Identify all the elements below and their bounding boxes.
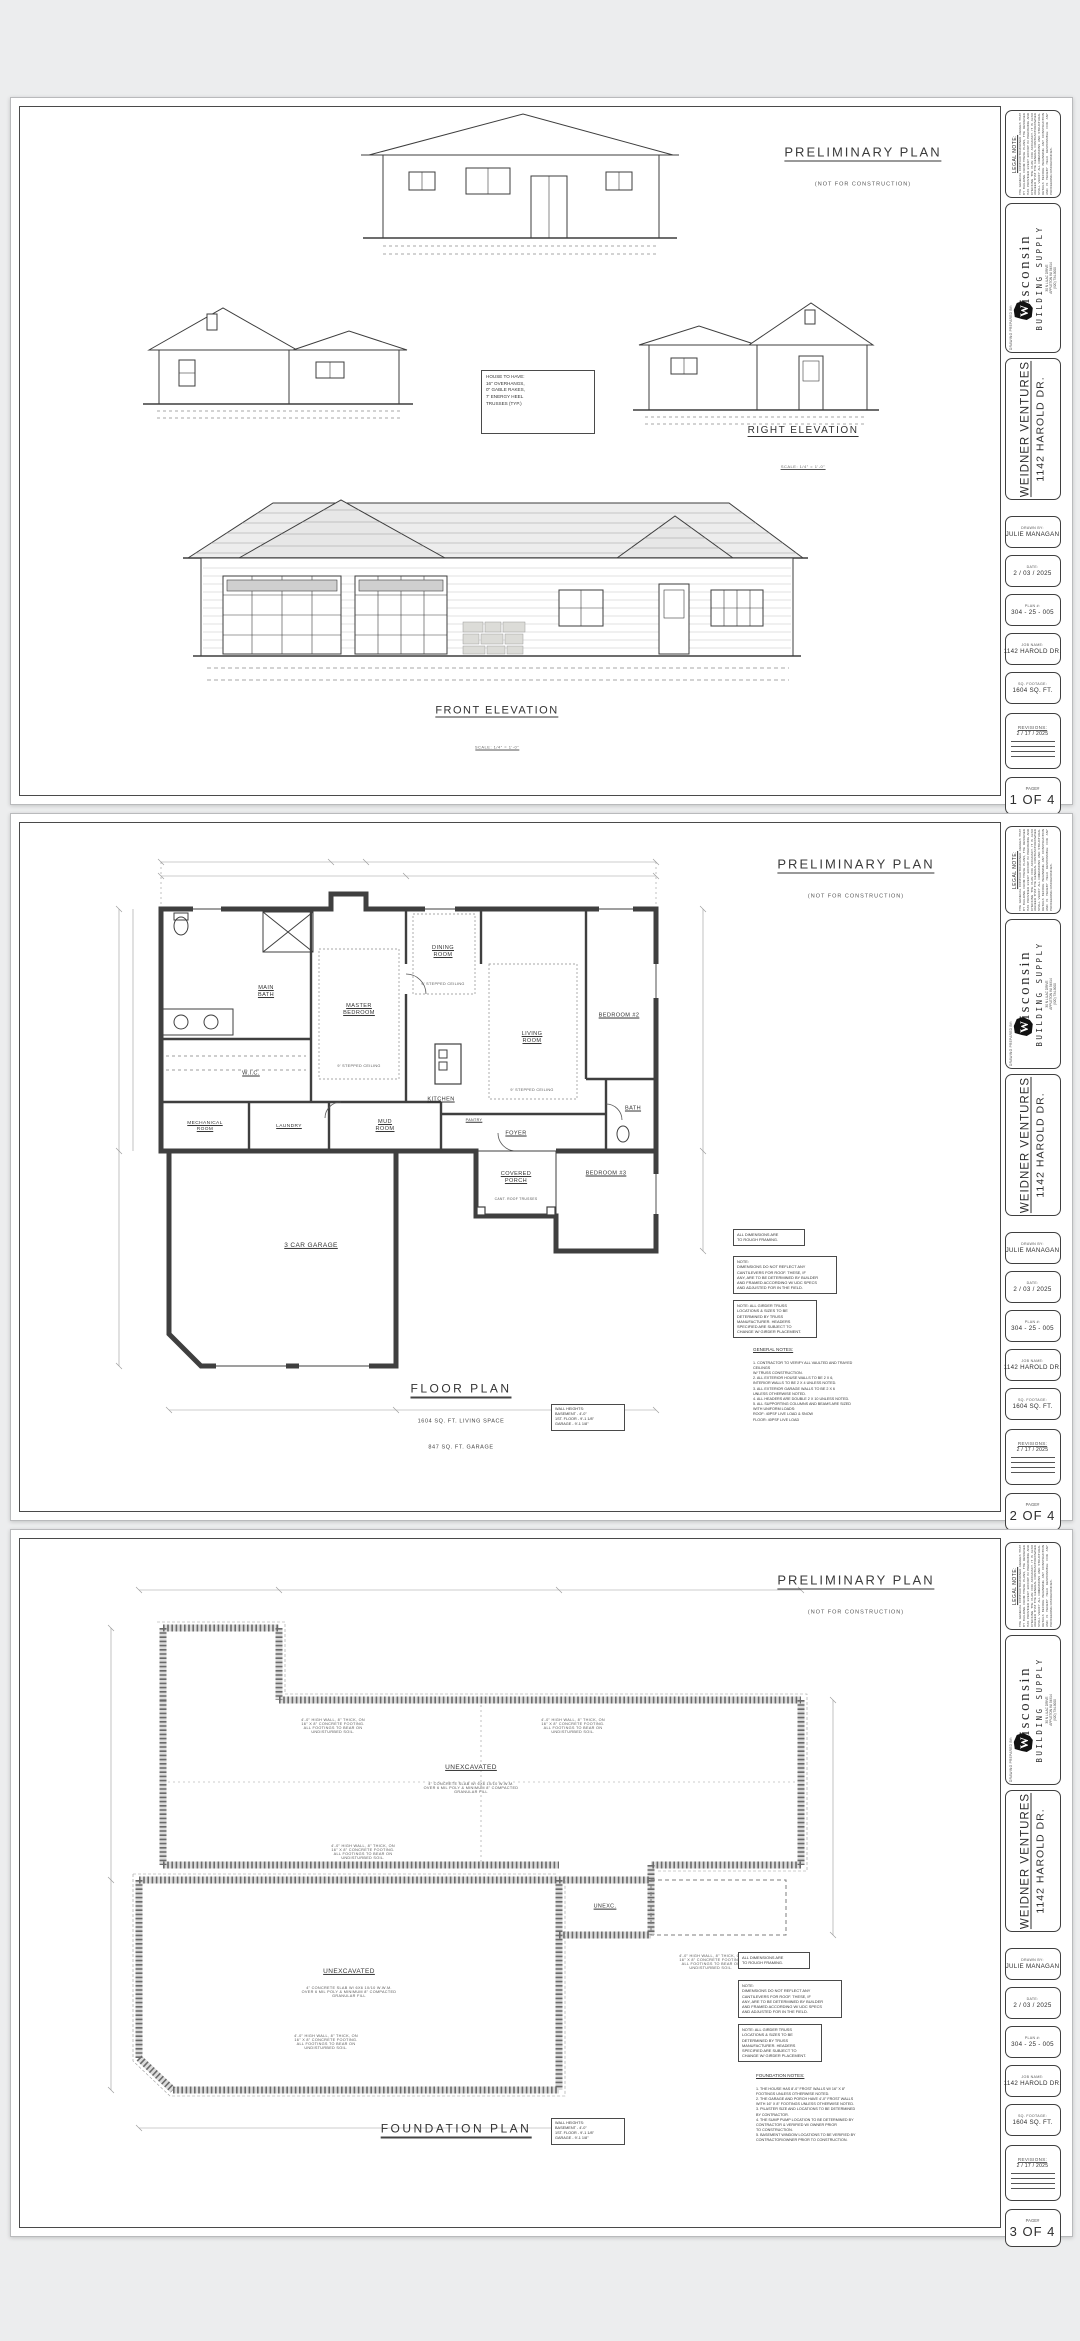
brand-address: 30 N LILAC DRIVE APPLETON WI 54914 (920)…	[1044, 262, 1056, 293]
wisconsin-state-icon: W	[1012, 300, 1033, 322]
foundation-notes: FOUNDATION NOTES: 1. THE HOUSE HAS 8'-0"…	[756, 2068, 868, 2149]
room-label-living: LIVING ROOM	[522, 1031, 543, 1045]
brand-address: 30 N LILAC DRIVE APPLETON WI 54914 (920)…	[1044, 978, 1056, 1009]
page-value: 2 OF 4	[1010, 1508, 1056, 1523]
brand-name: isconsin	[1016, 950, 1033, 1019]
revision-entry: 2 / 17 / 2025	[1017, 2163, 1049, 2169]
room-label-laundry: LAUNDRY	[276, 1124, 302, 1130]
right-elevation-label: RIGHT ELEVATION SCALE: 1/4" = 1'-0"	[748, 407, 859, 473]
page-label: PAGE#	[1026, 1502, 1040, 1507]
drawn-by-box: DRAWN BY: JULIE MANAGAN	[1005, 516, 1061, 548]
floor-plan-subtitle-garage: 847 SQ. FT. GARAGE	[410, 1445, 511, 1451]
legal-note-box: LEGAL NOTE: THE GENERAL CONTRACTOR/OWNER…	[1005, 826, 1061, 914]
revision-blank-line	[1011, 1472, 1055, 1473]
drawn-by-label: DRAWN BY:	[1021, 1242, 1044, 1246]
revision-blank-line	[1011, 746, 1055, 747]
page-number-box: PAGE# 1 OF 4	[1005, 777, 1061, 815]
brand-name: isconsin	[1016, 1666, 1033, 1735]
date-value: 2 / 03 / 2025	[1013, 570, 1051, 577]
page-value: 1 OF 4	[1010, 792, 1056, 807]
preparer-logo-box: DRAWING PREPARED BY: W isconsin BUILDING…	[1005, 919, 1061, 1069]
sheet-3-foundation-plan: PRELIMINARY PLAN (NOT FOR CONSTRUCTION) …	[10, 1529, 1073, 2237]
client-name: WEIDNER VENTURES	[1019, 1077, 1031, 1213]
job-name-value: 1142 HAROLD DR.	[1004, 1364, 1062, 1371]
foundation-plan-drawing	[11, 1530, 1072, 2236]
front-elevation-label: FRONT ELEVATION SCALE: 1/4" = 1'-0"	[435, 687, 558, 754]
foundation-notes-title: FOUNDATION NOTES:	[756, 2073, 868, 2079]
job-name-value: 1142 HAROLD DR.	[1004, 2080, 1062, 2087]
drawn-by-label: DRAWN BY:	[1021, 1958, 1044, 1962]
revisions-box: REVISIONS: 2 / 17 / 2025	[1005, 1429, 1061, 1485]
room-label-wic: W.I.C.	[242, 1071, 260, 1078]
wisconsin-state-icon: W	[1012, 1016, 1033, 1038]
ceiling-note-dining: 9' STEPPED CEILING	[421, 982, 464, 986]
job-name-label: JOB NAME:	[1021, 2075, 1043, 2079]
label-unexc-cell: UNEXC.	[594, 1904, 617, 1911]
client-box: WEIDNER VENTURES 1142 HAROLD DR.	[1005, 1074, 1061, 1216]
wisconsin-building-supply-logo: W isconsin	[1012, 1666, 1033, 1754]
brand-subtitle: BUILDING SUPPLY	[1034, 1657, 1043, 1762]
room-label-main-bath: MAIN BATH	[258, 985, 274, 999]
brand-subtitle: BUILDING SUPPLY	[1034, 225, 1043, 330]
wall-heights-box: WALL HEIGHTS: BASEMENT - 4'-0" 1ST. FLOO…	[551, 2118, 625, 2145]
revision-blank-line	[1011, 741, 1055, 742]
prepared-by-label: DRAWING PREPARED BY:	[1008, 305, 1012, 350]
wisconsin-building-supply-logo: W isconsin	[1012, 234, 1033, 322]
title-block: LEGAL NOTE: THE GENERAL CONTRACTOR/OWNER…	[1000, 1538, 1064, 2228]
preparer-logo-box: DRAWING PREPARED BY: W isconsin BUILDING…	[1005, 1635, 1061, 1785]
drawn-by-box: DRAWN BY: JULIE MANAGAN	[1005, 1232, 1061, 1264]
revisions-label: REVISIONS:	[1018, 2157, 1047, 2162]
legal-note-title: LEGAL NOTE:	[1012, 135, 1018, 173]
revisions-label: REVISIONS:	[1018, 725, 1047, 730]
sq-footage-label: SQ. FOOTAGE:	[1018, 1398, 1047, 1402]
wall-note-3: 4'-0" HIGH WALL, 8" THICK, ON 16" X 8" C…	[331, 1844, 395, 1860]
job-name-box: JOB NAME: 1142 HAROLD DR.	[1005, 2065, 1061, 2097]
room-label-covered-porch: COVERED PORCH	[501, 1171, 531, 1185]
page-number-box: PAGE# 2 OF 4	[1005, 1493, 1061, 1531]
drawn-by-value: JULIE MANAGAN	[1006, 531, 1060, 538]
drawn-by-value: JULIE MANAGAN	[1006, 1247, 1060, 1254]
revision-blank-line	[1011, 2183, 1055, 2184]
revisions-label: REVISIONS:	[1018, 1441, 1047, 1446]
label-unexcavated-main: UNEXCAVATED	[445, 1764, 497, 1772]
drawn-by-label: DRAWN BY:	[1021, 526, 1044, 530]
date-label: DATE:	[1027, 1997, 1039, 2001]
wall-note-5: 4'-0" HIGH WALL, 8" THICK, ON 16" X 8" C…	[294, 2034, 358, 2050]
floor-plan-subtitle-living: 1604 SQ. FT. LIVING SPACE	[410, 1419, 511, 1425]
foundation-plan-title: FOUNDATION PLAN	[381, 2104, 532, 2157]
wisconsin-state-icon: W	[1012, 1732, 1033, 1754]
drawn-by-value: JULIE MANAGAN	[1006, 1963, 1060, 1970]
client-address: 1142 HAROLD DR.	[1034, 1092, 1046, 1197]
revision-blank-line	[1011, 1462, 1055, 1463]
general-notes-title: GENERAL NOTES:	[753, 1347, 863, 1353]
legal-note-title: LEGAL NOTE:	[1012, 851, 1018, 889]
note-girder-truss: NOTE: ALL GIRDER TRUSS LOCATIONS & SIZES…	[733, 1300, 817, 1338]
wall-note-4: 4'-0" HIGH WALL, 8" THICK, ON 16" X 8" C…	[679, 1954, 743, 1970]
room-label-foyer: FOYER	[505, 1131, 526, 1138]
plan-number-label: PLAN #:	[1025, 604, 1040, 608]
job-name-value: 1142 HAROLD DR.	[1004, 648, 1062, 655]
page-value: 3 OF 4	[1010, 2224, 1056, 2239]
room-label-mechanical: MECHANICAL ROOM	[187, 1121, 222, 1133]
title-block: LEGAL NOTE: THE GENERAL CONTRACTOR/OWNER…	[1000, 822, 1064, 1512]
legal-note-box: LEGAL NOTE: THE GENERAL CONTRACTOR/OWNER…	[1005, 1542, 1061, 1630]
revisions-box: REVISIONS: 2 / 17 / 2025	[1005, 2145, 1061, 2201]
stamp-title: PRELIMINARY PLAN	[777, 857, 934, 874]
client-name: WEIDNER VENTURES	[1019, 361, 1031, 497]
note-cantilevers: NOTE: DIMENSIONS DO NOT REFLECT ANY CANT…	[738, 1980, 842, 2018]
revision-entry: 2 / 17 / 2025	[1017, 1447, 1049, 1453]
legal-note-title: LEGAL NOTE:	[1012, 1567, 1018, 1605]
slab-note-main: 4" CONCRETE SLAB W/ 6X6 10/10 W.W.M. OVE…	[424, 1782, 519, 1794]
page-number-box: PAGE# 3 OF 4	[1005, 2209, 1061, 2247]
revision-entry: 2 / 17 / 2025	[1017, 731, 1049, 737]
plan-number-value: 304 - 25 - 005	[1011, 1325, 1054, 1332]
revision-blank-line	[1011, 1457, 1055, 1458]
brand-address: 30 N LILAC DRIVE APPLETON WI 54914 (920)…	[1044, 1694, 1056, 1725]
legal-note-box: LEGAL NOTE: THE GENERAL CONTRACTOR/OWNER…	[1005, 110, 1061, 198]
legal-note-body: THE GENERAL CONTRACTOR/OWNER AGREES THAT…	[1019, 829, 1054, 911]
ceiling-note-living: 9' STEPPED CEILING	[510, 1088, 553, 1092]
stamp-subtitle: (NOT FOR CONSTRUCTION)	[784, 182, 941, 188]
brand-subtitle: BUILDING SUPPLY	[1034, 941, 1043, 1046]
porch-truss-note: CANT. ROOF TRUSSES	[495, 1197, 538, 1201]
note-dimensions: ALL DIMENSIONS ARE TO ROUGH FRAMING.	[738, 1952, 810, 1969]
house-spec-note: HOUSE TO HAVE: 16" OVERHANGS, 0" GABLE R…	[481, 370, 595, 434]
wisconsin-building-supply-logo: W isconsin	[1012, 950, 1033, 1038]
date-label: DATE:	[1027, 565, 1039, 569]
wall-heights-box: WALL HEIGHTS: BASEMENT - 4'-0" 1ST. FLOO…	[551, 1404, 625, 1431]
plan-number-label: PLAN #:	[1025, 2036, 1040, 2040]
stamp-subtitle: (NOT FOR CONSTRUCTION)	[777, 1610, 934, 1616]
floor-plan-title: FLOOR PLAN 1604 SQ. FT. LIVING SPACE 847…	[410, 1364, 511, 1469]
plan-number-box: PLAN #: 304 - 25 - 005	[1005, 594, 1061, 626]
sq-footage-value: 1604 SQ. FT.	[1012, 2119, 1052, 2126]
stamp-subtitle: (NOT FOR CONSTRUCTION)	[777, 894, 934, 900]
job-name-label: JOB NAME:	[1021, 643, 1043, 647]
client-address: 1142 HAROLD DR.	[1034, 376, 1046, 481]
job-name-label: JOB NAME:	[1021, 1359, 1043, 1363]
foundation-notes-body: 1. THE HOUSE HAS 8'-0" FROST WALLS W/ 16…	[756, 2087, 868, 2144]
revisions-box: REVISIONS: 2 / 17 / 2025	[1005, 713, 1061, 769]
sq-footage-value: 1604 SQ. FT.	[1012, 1403, 1052, 1410]
revision-blank-line	[1011, 2178, 1055, 2179]
svg-text:W: W	[1016, 1021, 1030, 1033]
date-label: DATE:	[1027, 1281, 1039, 1285]
date-value: 2 / 03 / 2025	[1013, 1286, 1051, 1293]
date-box: DATE: 2 / 03 / 2025	[1005, 1987, 1061, 2019]
page-label: PAGE#	[1026, 2218, 1040, 2223]
label-unexcavated-garage: UNEXCAVATED	[323, 1968, 375, 1976]
plan-number-label: PLAN #:	[1025, 1320, 1040, 1324]
title-block: LEGAL NOTE: THE GENERAL CONTRACTOR/OWNER…	[1000, 106, 1064, 796]
floor-plan-drawing	[11, 814, 1072, 1520]
sq-footage-label: SQ. FOOTAGE:	[1018, 682, 1047, 686]
sq-footage-box: SQ. FOOTAGE: 1604 SQ. FT.	[1005, 1388, 1061, 1420]
blueprint-document-view: { "title_block": { "legal_note_title": "…	[0, 0, 1080, 2341]
room-label-mud-room: MUD ROOM	[375, 1119, 394, 1133]
room-label-pantry: PANTRY	[466, 1118, 483, 1122]
sq-footage-label: SQ. FOOTAGE:	[1018, 2114, 1047, 2118]
drawn-by-box: DRAWN BY: JULIE MANAGAN	[1005, 1948, 1061, 1980]
room-label-bedroom2: BEDROOM #2	[599, 1013, 640, 1020]
wall-note-2: 4'-0" HIGH WALL, 8" THICK, ON 16" X 8" C…	[541, 1718, 605, 1734]
svg-text:W: W	[1016, 1737, 1030, 1749]
date-box: DATE: 2 / 03 / 2025	[1005, 555, 1061, 587]
room-label-master-bedroom: MASTER BEDROOM	[343, 1003, 375, 1017]
sq-footage-box: SQ. FOOTAGE: 1604 SQ. FT.	[1005, 672, 1061, 704]
stamp-title: PRELIMINARY PLAN	[784, 145, 941, 162]
plan-number-box: PLAN #: 304 - 25 - 005	[1005, 2026, 1061, 2058]
note-dimensions: ALL DIMENSIONS ARE TO ROUGH FRAMING.	[733, 1229, 805, 1246]
preliminary-plan-stamp: PRELIMINARY PLAN (NOT FOR CONSTRUCTION)	[777, 1555, 934, 1634]
revision-blank-line	[1011, 2173, 1055, 2174]
sheet-1-elevations: PRELIMINARY PLAN (NOT FOR CONSTRUCTION) …	[10, 97, 1073, 805]
job-name-box: JOB NAME: 1142 HAROLD DR.	[1005, 1349, 1061, 1381]
right-elevation-scale: SCALE: 1/4" = 1'-0"	[781, 464, 825, 470]
job-name-box: JOB NAME: 1142 HAROLD DR.	[1005, 633, 1061, 665]
room-label-bath: BATH	[625, 1106, 641, 1113]
room-label-kitchen: KITCHEN	[427, 1097, 454, 1104]
prepared-by-label: DRAWING PREPARED BY:	[1008, 1021, 1012, 1066]
general-notes-body: 1. CONTRACTOR TO VERIFY ALL VAULTED AND …	[753, 1361, 863, 1423]
legal-note-body: THE GENERAL CONTRACTOR/OWNER AGREES THAT…	[1019, 1545, 1054, 1627]
ceiling-note-master: 9' STEPPED CEILING	[337, 1064, 380, 1068]
client-box: WEIDNER VENTURES 1142 HAROLD DR.	[1005, 1790, 1061, 1932]
revision-blank-line	[1011, 751, 1055, 752]
note-girder-truss: NOTE: ALL GIRDER TRUSS LOCATIONS & SIZES…	[738, 2024, 822, 2062]
client-name: WEIDNER VENTURES	[1019, 1793, 1031, 1929]
preliminary-plan-stamp: PRELIMINARY PLAN (NOT FOR CONSTRUCTION)	[777, 839, 934, 918]
client-address: 1142 HAROLD DR.	[1034, 1808, 1046, 1913]
revision-blank-line	[1011, 2188, 1055, 2189]
page-label: PAGE#	[1026, 786, 1040, 791]
sheet-2-floor-plan: PRELIMINARY PLAN (NOT FOR CONSTRUCTION) …	[10, 813, 1073, 1521]
plan-number-box: PLAN #: 304 - 25 - 005	[1005, 1310, 1061, 1342]
slab-note-garage: 4" CONCRETE SLAB W/ 6X6 10/10 W.W.M. OVE…	[302, 1986, 397, 1998]
wall-note-1: 4'-0" HIGH WALL, 8" THICK, ON 16" X 8" C…	[301, 1718, 365, 1734]
stamp-title: PRELIMINARY PLAN	[777, 1573, 934, 1590]
preparer-logo-box: DRAWING PREPARED BY: W isconsin BUILDING…	[1005, 203, 1061, 353]
client-box: WEIDNER VENTURES 1142 HAROLD DR.	[1005, 358, 1061, 500]
plan-number-value: 304 - 25 - 005	[1011, 2041, 1054, 2048]
sq-footage-value: 1604 SQ. FT.	[1012, 687, 1052, 694]
note-cantilevers: NOTE: DIMENSIONS DO NOT REFLECT ANY CANT…	[733, 1256, 837, 1294]
svg-text:W: W	[1016, 305, 1030, 317]
preliminary-plan-stamp: PRELIMINARY PLAN (NOT FOR CONSTRUCTION)	[784, 127, 941, 206]
sq-footage-box: SQ. FOOTAGE: 1604 SQ. FT.	[1005, 2104, 1061, 2136]
plan-number-value: 304 - 25 - 005	[1011, 609, 1054, 616]
prepared-by-label: DRAWING PREPARED BY:	[1008, 1737, 1012, 1782]
date-box: DATE: 2 / 03 / 2025	[1005, 1271, 1061, 1303]
room-label-bedroom3: BEDROOM #3	[586, 1171, 627, 1178]
revision-blank-line	[1011, 1467, 1055, 1468]
room-label-dining: DINING ROOM	[432, 945, 454, 959]
revision-blank-line	[1011, 756, 1055, 757]
room-label-garage: 3 CAR GARAGE	[284, 1242, 338, 1250]
date-value: 2 / 03 / 2025	[1013, 2002, 1051, 2009]
general-notes: GENERAL NOTES: 1. CONTRACTOR TO VERIFY A…	[753, 1342, 863, 1428]
brand-name: isconsin	[1016, 234, 1033, 303]
front-elevation-scale: SCALE: 1/4" = 1'-0"	[475, 745, 519, 751]
legal-note-body: THE GENERAL CONTRACTOR/OWNER AGREES THAT…	[1019, 113, 1054, 195]
